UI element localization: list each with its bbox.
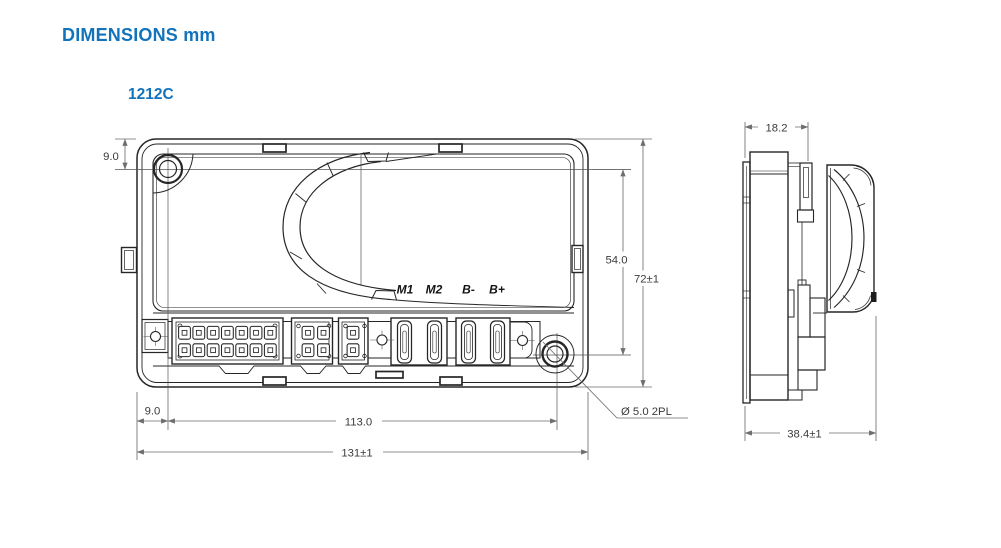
dimension-drawing: M1 M2 B- B+ [0, 0, 1001, 548]
connector-4pin [292, 318, 333, 364]
terminal-labels: M1 M2 B- B+ [397, 283, 505, 297]
side-view: 18.2 38.4±1 [743, 120, 877, 442]
dim-top-edge-to-hole: 9.0 [103, 151, 119, 163]
connector-2pin [339, 318, 369, 364]
side-connector-stack [798, 280, 825, 390]
battery-terminal-block [456, 318, 510, 365]
dome-edge-tab [871, 292, 877, 302]
dim-mounting-hole-note: Ø 5.0 2PL [621, 406, 672, 418]
dim-overall-width: 131±1 [341, 448, 372, 460]
connector-14pin [172, 318, 283, 364]
dim-hole-spacing-horizontal: 113.0 [345, 417, 372, 429]
side-dome [813, 165, 877, 313]
terminal-label-b-minus: B- [462, 283, 475, 297]
front-view-dimensions: 9.0 54.0 72±1 9.0 113.0 131±1 Ø 5.0 2PL [103, 139, 688, 460]
dim-overall-depth: 38.4±1 [787, 429, 821, 441]
side-base-plate [743, 152, 802, 403]
dim-hole-spacing-vertical: 54.0 [606, 255, 628, 267]
dim-overall-height: 72±1 [634, 274, 659, 286]
datasheet-page: DIMENSIONS mm 1212C [0, 0, 1001, 548]
front-view: M1 M2 B- B+ [103, 139, 688, 460]
side-top-rib [788, 163, 814, 285]
terminal-label-b-plus: B+ [489, 283, 505, 297]
dim-base-depth: 18.2 [766, 123, 788, 135]
terminal-label-m2: M2 [426, 283, 443, 297]
motor-terminal-block [391, 318, 447, 365]
dim-left-edge-to-hole: 9.0 [145, 406, 161, 418]
terminal-label-m1: M1 [397, 283, 414, 297]
